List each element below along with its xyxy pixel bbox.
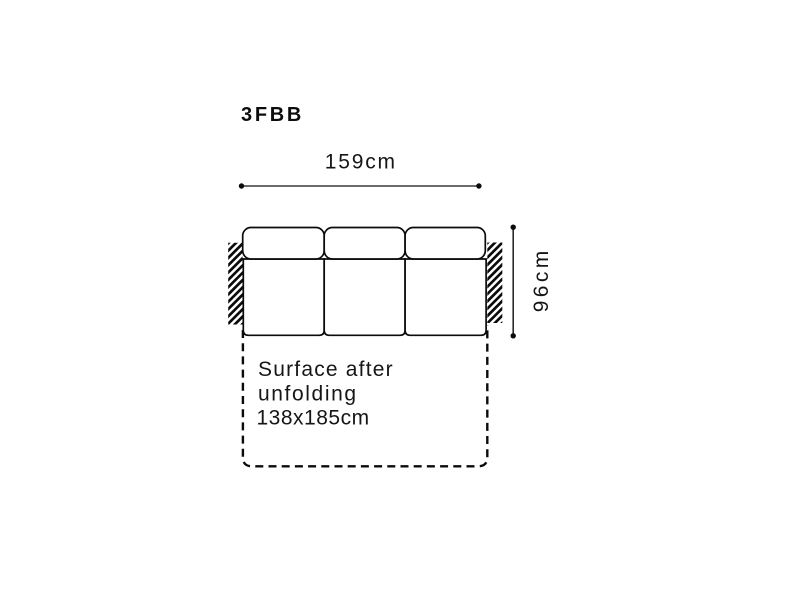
svg-text:Surface after: Surface after: [258, 358, 394, 381]
svg-text:96cm: 96cm: [530, 247, 553, 312]
svg-text:unfolding: unfolding: [258, 382, 358, 405]
svg-text:3FBB: 3FBB: [241, 104, 304, 126]
svg-text:138x185cm: 138x185cm: [257, 406, 370, 429]
svg-text:159cm: 159cm: [325, 151, 397, 174]
